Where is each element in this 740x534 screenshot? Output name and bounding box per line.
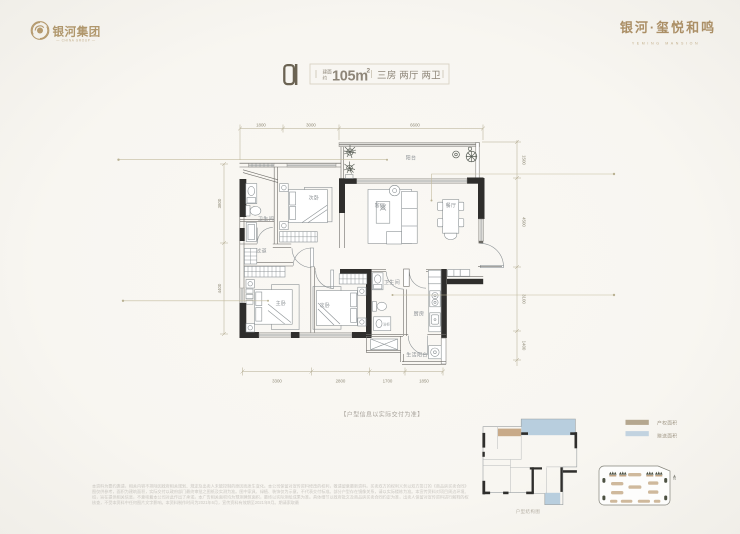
svg-text:1800: 1800 xyxy=(256,122,266,127)
svg-text:卫生间: 卫生间 xyxy=(258,216,274,223)
svg-text:银河集团: 银河集团 xyxy=(53,25,101,39)
svg-text:4500: 4500 xyxy=(522,217,527,227)
svg-text:3100: 3100 xyxy=(522,294,527,304)
svg-text:— CHINA GROUP —: — CHINA GROUP — xyxy=(56,39,96,43)
svg-text:1500: 1500 xyxy=(522,155,527,165)
svg-text:建面: 建面 xyxy=(323,69,333,76)
svg-text:1700: 1700 xyxy=(383,378,393,383)
svg-text:6600: 6600 xyxy=(410,122,420,127)
svg-text:客厅: 客厅 xyxy=(375,202,386,209)
svg-text:餐厅: 餐厅 xyxy=(446,202,457,209)
svg-text:3800: 3800 xyxy=(217,198,222,208)
svg-text:3300: 3300 xyxy=(272,378,282,383)
svg-text:三房 两厅 两卫: 三房 两厅 两卫 xyxy=(377,69,441,81)
svg-text:赠送面积: 赠送面积 xyxy=(657,433,677,440)
svg-text:过道: 过道 xyxy=(256,248,267,255)
svg-text:YEMING MANSION: YEMING MANSION xyxy=(632,42,700,46)
svg-text:阳台: 阳台 xyxy=(406,155,417,162)
svg-text:核查，不受本资料中任何图片文字影响。本资料制作时间为2021: 核查，不受本资料中任何图片文字影响。本资料制作时间为2021年6月，宣传资料有效… xyxy=(92,499,299,505)
svg-text:主卧: 主卧 xyxy=(276,300,287,307)
svg-text:浴柜: 浴柜 xyxy=(383,322,390,327)
svg-text:卫生间: 卫生间 xyxy=(384,279,400,286)
svg-text:105m: 105m xyxy=(332,69,368,85)
svg-text:图仅供参考，面积为建筑面积，实际交付以政府部门最终审批之图纸: 图仅供参考，面积为建筑面积，实际交付以政府部门最终审批之图纸及实测为准。图中家具… xyxy=(92,488,469,494)
svg-text:1400: 1400 xyxy=(522,341,527,351)
svg-text:生活阳台: 生活阳台 xyxy=(406,352,428,359)
svg-text:2800: 2800 xyxy=(336,378,346,383)
svg-text:3000: 3000 xyxy=(306,122,316,127)
svg-text:户型结构图: 户型结构图 xyxy=(516,508,541,515)
svg-text:次卧: 次卧 xyxy=(320,302,331,309)
svg-text:2: 2 xyxy=(367,68,371,75)
svg-text:【户型信息以实际交付为准】: 【户型信息以实际交付为准】 xyxy=(340,411,423,419)
svg-text:银河·玺悦和鸣: 银河·玺悦和鸣 xyxy=(620,20,716,35)
svg-text:绍，旨在提供相关信息，不意味着本公司对此作出了承诺。本广告相: 绍，旨在提供相关信息，不意味着本公司对此作出了承诺。本广告相关面积均为预测建筑面… xyxy=(92,494,469,500)
svg-text:产权面积: 产权面积 xyxy=(657,420,677,427)
svg-text:约: 约 xyxy=(323,75,328,82)
svg-text:4400: 4400 xyxy=(217,283,222,293)
svg-text:次卧: 次卧 xyxy=(309,195,320,202)
svg-text:1850: 1850 xyxy=(419,378,429,383)
svg-text:本资料为要约邀请，相关内容不排除因政府相关规划、规定及出卖人: 本资料为要约邀请，相关内容不排除因政府相关规划、规定及出卖人未能控制的原因而发生… xyxy=(92,483,469,489)
svg-text:厨房: 厨房 xyxy=(414,311,425,318)
